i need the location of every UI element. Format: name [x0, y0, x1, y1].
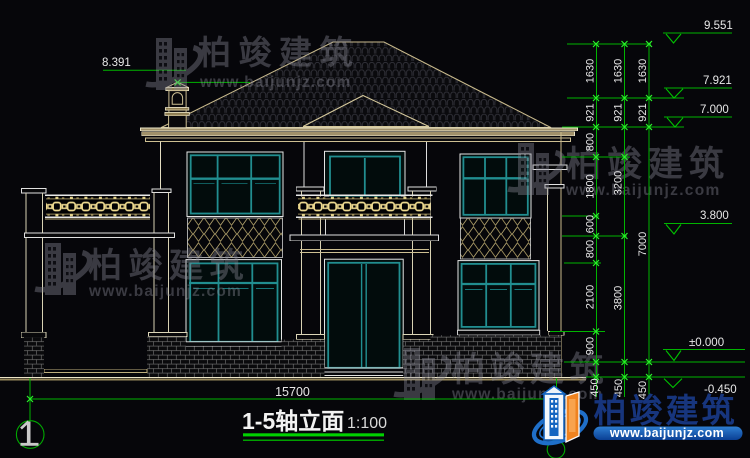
- svg-text:1-5轴立面: 1-5轴立面: [242, 408, 344, 434]
- svg-text:3800: 3800: [613, 286, 625, 310]
- svg-text:1800: 1800: [585, 174, 597, 198]
- svg-text:1:100: 1:100: [347, 415, 387, 432]
- svg-text:www.baijunjz.com: www.baijunjz.com: [451, 386, 603, 403]
- svg-text:600: 600: [585, 215, 597, 233]
- svg-text:www.baijunjz.com: www.baijunjz.com: [609, 426, 724, 440]
- svg-text:1630: 1630: [637, 59, 649, 83]
- svg-text:921: 921: [637, 103, 649, 121]
- svg-text:7000: 7000: [637, 232, 649, 256]
- svg-text:www.baijunjz.com: www.baijunjz.com: [88, 283, 242, 300]
- svg-text:3200: 3200: [613, 171, 625, 195]
- svg-text:±0.000: ±0.000: [689, 337, 724, 349]
- svg-text:1630: 1630: [613, 59, 625, 83]
- svg-text:7.000: 7.000: [700, 104, 729, 116]
- svg-text:3.800: 3.800: [700, 210, 729, 222]
- svg-text:柏竣建筑: 柏竣建筑: [198, 34, 360, 71]
- svg-text:www.baijunjz.com: www.baijunjz.com: [199, 74, 351, 91]
- svg-text:800: 800: [585, 240, 597, 258]
- svg-text:2100: 2100: [585, 285, 597, 309]
- svg-text:921: 921: [613, 103, 625, 121]
- svg-text:7.921: 7.921: [703, 75, 732, 87]
- svg-text:柏竣建筑: 柏竣建筑: [594, 392, 738, 429]
- svg-text:921: 921: [585, 103, 597, 121]
- svg-text:1630: 1630: [585, 59, 597, 83]
- svg-text:9.551: 9.551: [704, 20, 733, 32]
- svg-text:柏竣建筑: 柏竣建筑: [88, 246, 250, 285]
- svg-text:15700: 15700: [275, 385, 310, 399]
- svg-text:900: 900: [585, 337, 597, 355]
- svg-text:800: 800: [585, 133, 597, 151]
- svg-text:8.391: 8.391: [102, 57, 131, 69]
